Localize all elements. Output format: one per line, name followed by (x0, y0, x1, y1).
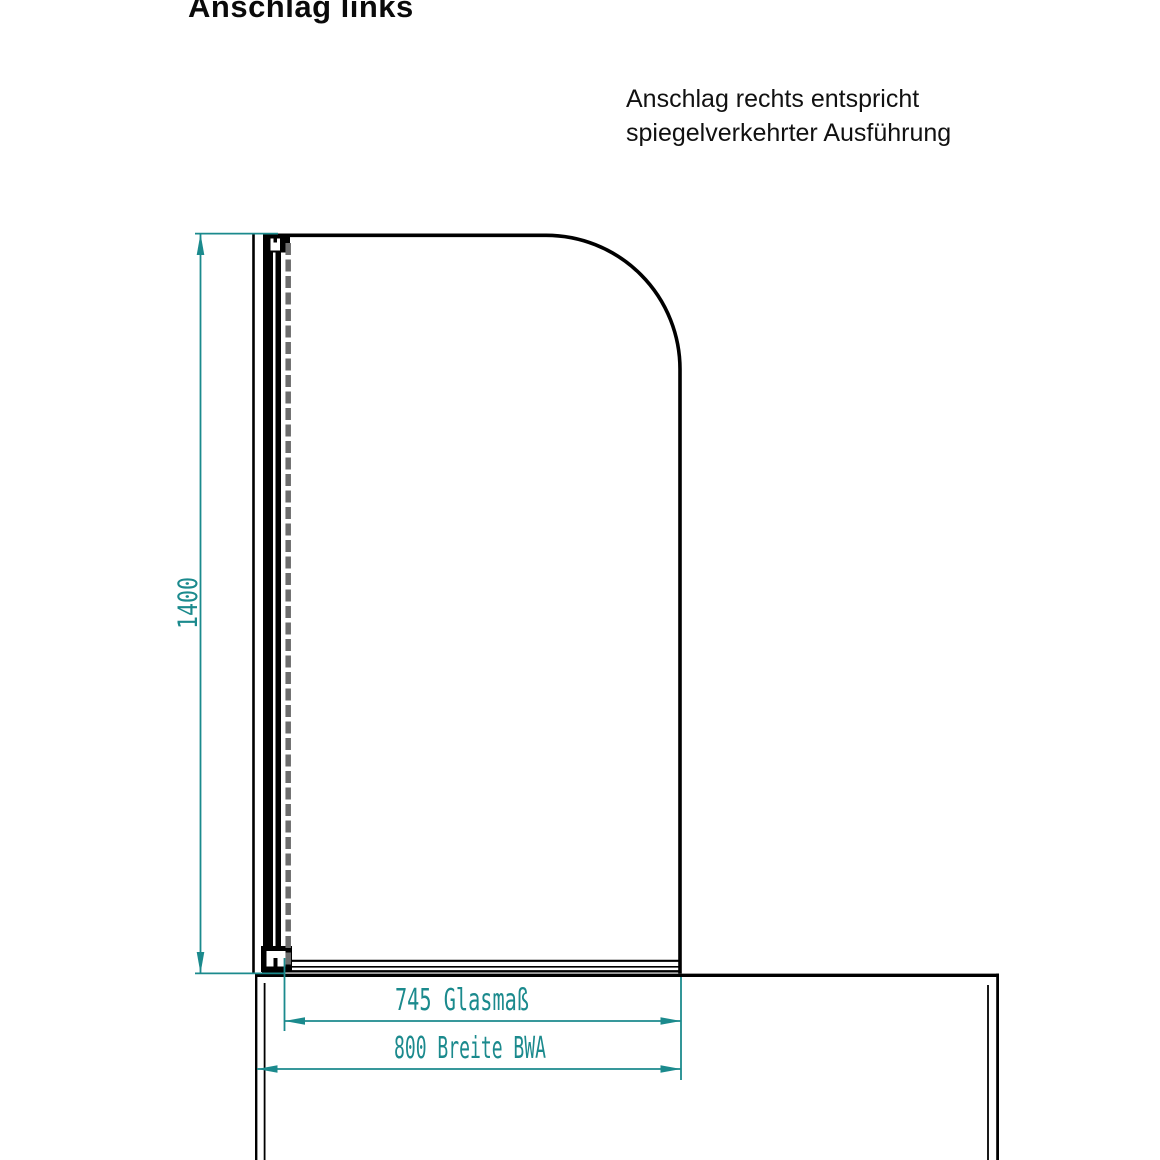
wall-profile (254, 234, 282, 973)
height-arrow-down (197, 952, 205, 973)
overall-width-arrow-left (257, 1065, 278, 1072)
bottom-rail (262, 961, 680, 972)
wall-profile-bar (263, 235, 273, 972)
overall-width-arrow-right (661, 1065, 682, 1072)
glass-width-dim-label: 745 Glasmaß (395, 983, 529, 1018)
glass-width-arrow-left (285, 1017, 306, 1024)
technical-drawing: 1400 745 Glasmaß 800 Breite BWA (0, 0, 1160, 1160)
glass-panel-outline (266, 235, 680, 973)
bathtub (255, 974, 999, 1160)
hinge-top-pin (274, 235, 278, 243)
height-arrow-up (197, 234, 205, 255)
overall-width-dim-label: 800 Breite BWA (394, 1031, 546, 1066)
wall-profile-inner-bar (276, 235, 282, 972)
height-dim-label: 1400 (173, 577, 204, 629)
dimension-labels: 1400 745 Glasmaß 800 Breite BWA (173, 577, 546, 1066)
hinge-bottom-pin (274, 958, 278, 967)
glass-width-arrow-right (661, 1017, 682, 1024)
